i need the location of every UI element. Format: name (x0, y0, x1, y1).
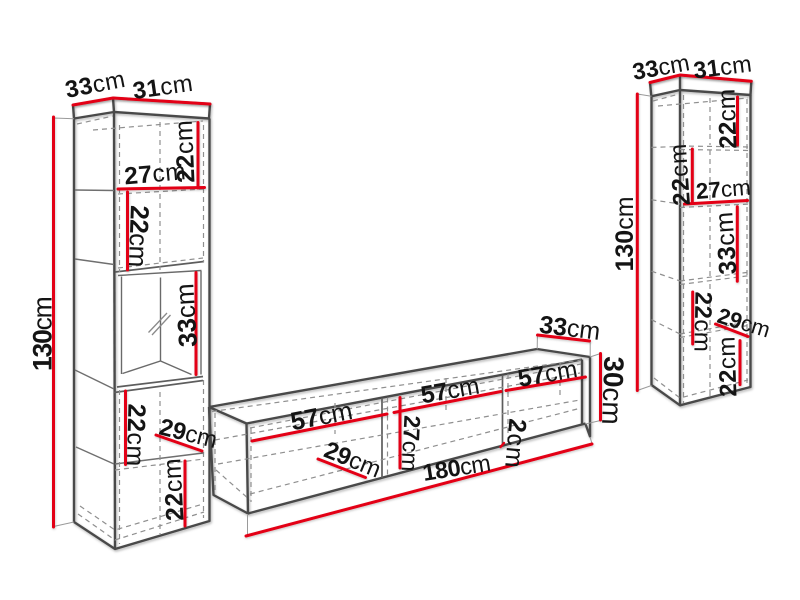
svg-text:33cm: 33cm (710, 211, 742, 276)
svg-text:2cm: 2cm (499, 417, 531, 469)
svg-text:33cm: 33cm (169, 283, 203, 348)
svg-text:22cm: 22cm (121, 403, 151, 467)
svg-text:130cm: 130cm (611, 196, 639, 271)
svg-text:30cm: 30cm (596, 356, 629, 426)
svg-text:27cm: 27cm (695, 175, 752, 204)
svg-text:22cm: 22cm (123, 205, 155, 268)
svg-text:22cm: 22cm (158, 457, 189, 522)
svg-text:22cm: 22cm (713, 88, 742, 149)
svg-text:22cm: 22cm (688, 291, 716, 352)
svg-text:27cm: 27cm (123, 158, 187, 190)
svg-text:130cm: 130cm (28, 297, 58, 371)
svg-text:22cm: 22cm (665, 142, 696, 206)
svg-text:22cm: 22cm (713, 336, 742, 398)
